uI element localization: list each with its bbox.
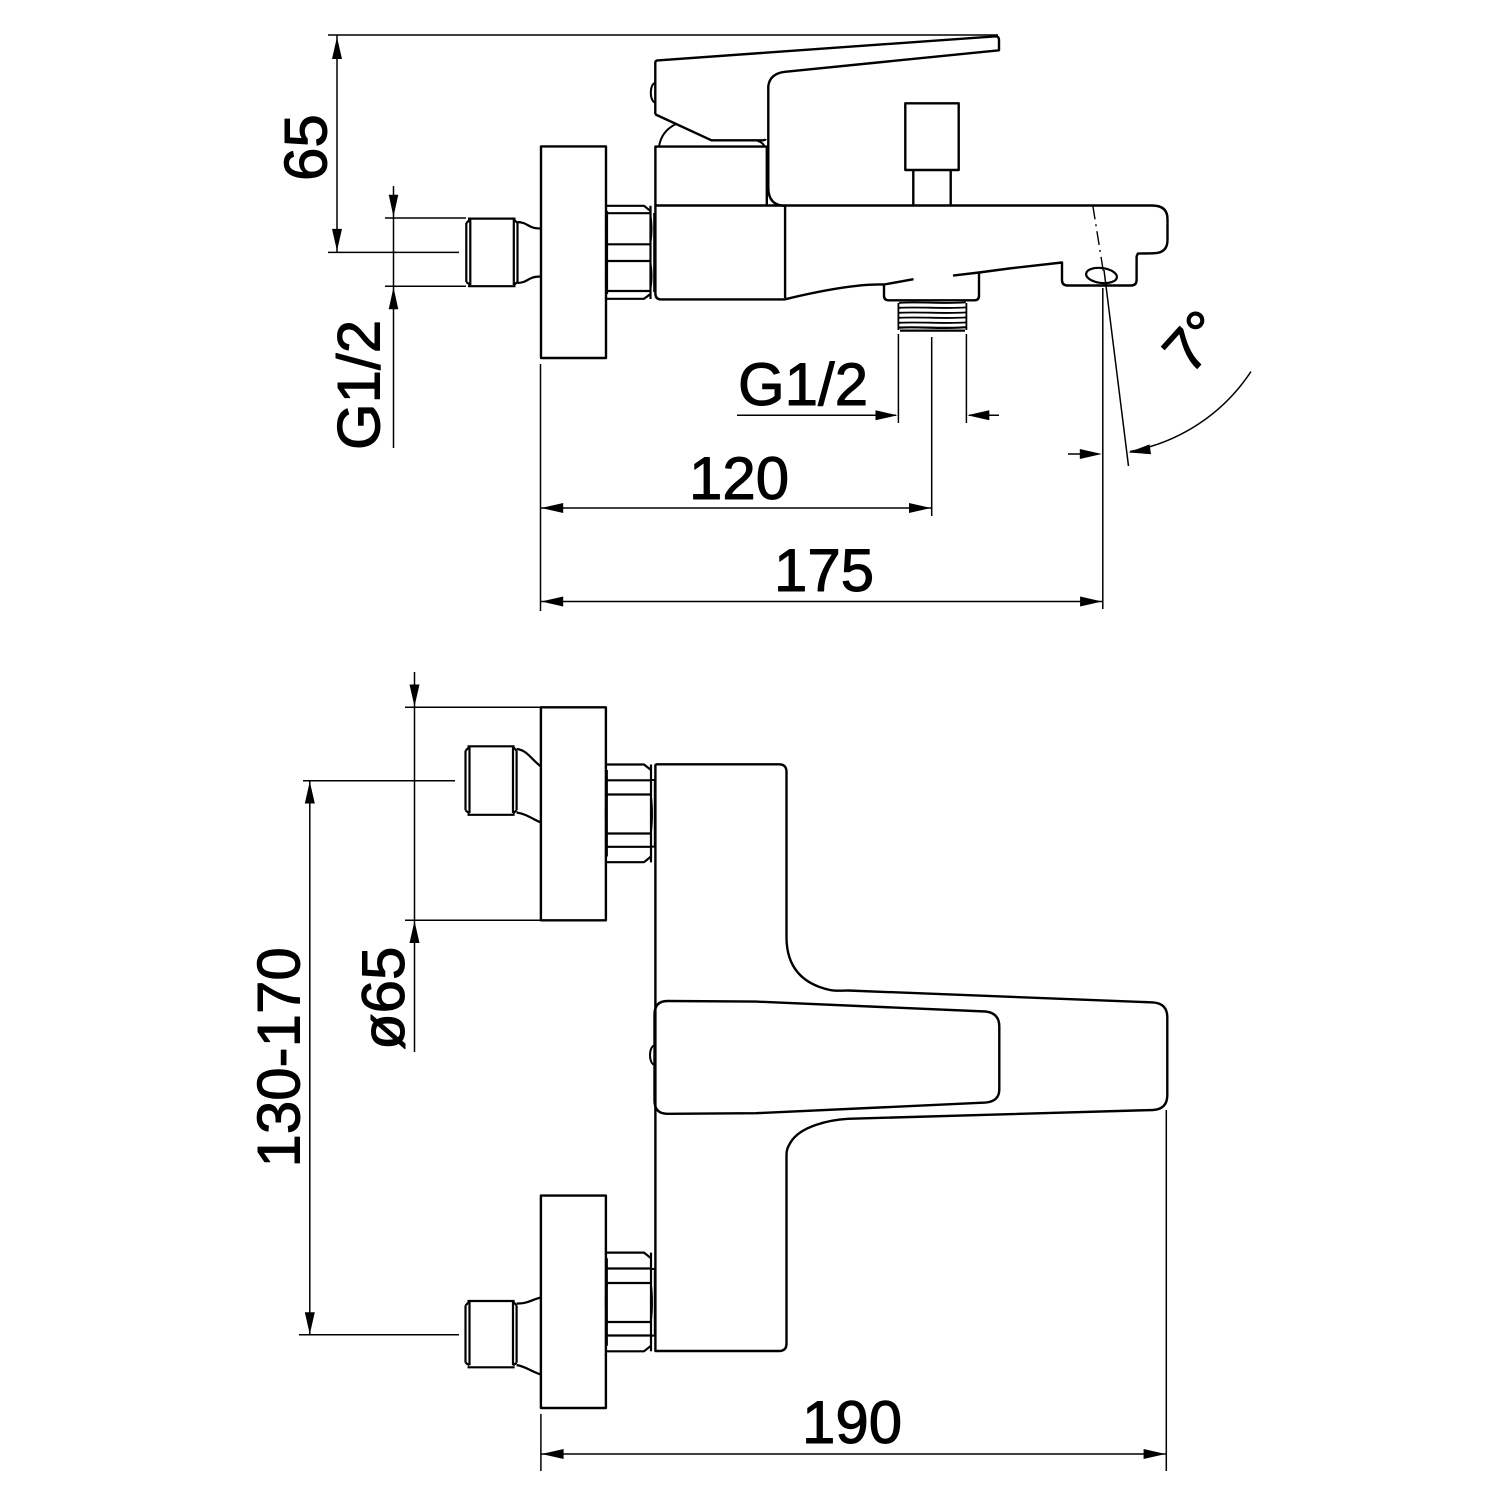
svg-text:175: 175 <box>774 537 874 604</box>
svg-text:130-170: 130-170 <box>246 947 313 1167</box>
svg-text:190: 190 <box>802 1389 902 1456</box>
svg-text:120: 120 <box>689 445 789 512</box>
svg-text:65: 65 <box>273 114 340 181</box>
svg-text:7°: 7° <box>1150 298 1238 385</box>
svg-text:ø65: ø65 <box>350 947 417 1050</box>
svg-text:G1/2: G1/2 <box>326 320 393 450</box>
svg-text:G1/2: G1/2 <box>738 351 868 418</box>
